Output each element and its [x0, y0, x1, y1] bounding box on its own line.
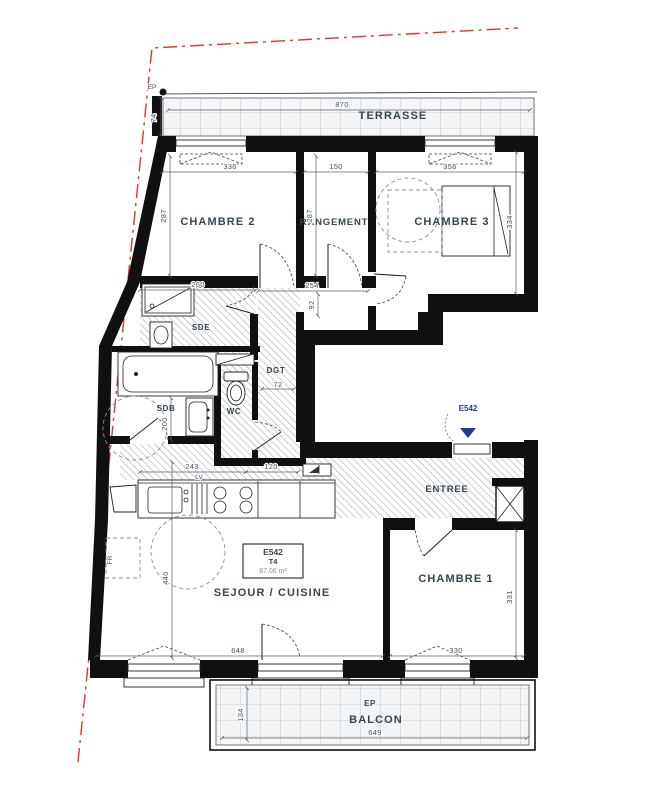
dim-chambre1-h: 331 — [505, 590, 514, 603]
door-window-sejour — [258, 664, 343, 671]
unit-area: 87.06 m² — [259, 568, 287, 575]
dim-kitchen-l: 440 — [161, 571, 170, 584]
dgt-label: DGT — [267, 366, 286, 375]
ep-terrasse-label: EP — [148, 84, 157, 91]
dim-terrasse-w: 870 — [335, 100, 348, 109]
dim-sdb-d: 200 — [160, 417, 169, 430]
floor-plan-page: EP TERRASSE 870 74 — [0, 0, 663, 800]
dim-hall-l: 254 — [305, 281, 318, 290]
dim-rangement-w: 150 — [329, 162, 342, 171]
chambre1-label: CHAMBRE 1 — [418, 573, 493, 585]
dim-chambre3-w: 356 — [443, 162, 456, 171]
balcon-label: BALCON — [349, 714, 403, 726]
ep-drain-icon — [160, 89, 167, 96]
dim-dgt-w: 72 — [274, 380, 283, 389]
balcon: EP BALCON 649 134 — [210, 680, 535, 750]
dim-chambre3-h: 334 — [505, 215, 514, 228]
dim-chambre1-w: 330 — [449, 646, 462, 655]
shaft-box — [496, 486, 524, 522]
wc-label: WC — [227, 407, 242, 416]
dim-hall-w: 92 — [307, 301, 316, 310]
window-chambre1 — [405, 664, 470, 671]
dim-kitchen-a: 243 — [185, 462, 198, 471]
vent-marker — [303, 464, 331, 476]
dishwasher-label: LV — [195, 474, 203, 481]
dim-sde-w: 260 — [191, 280, 204, 289]
entry-door — [454, 444, 490, 454]
entry-label: E542 — [459, 404, 478, 413]
terrasse-label: TERRASSE — [359, 110, 428, 122]
entree-label: ENTREE — [425, 484, 468, 495]
unit-info-box: E542 T4 87.06 m² — [243, 544, 303, 578]
bathtub — [118, 352, 218, 396]
chambre3-label: CHAMBRE 3 — [414, 216, 489, 228]
dim-balcon-w: 649 — [368, 728, 381, 737]
fridge-label: FR — [107, 555, 114, 564]
window-chambre3 — [425, 140, 495, 146]
dim-chambre2-h: 287 — [159, 209, 168, 222]
unit-code: E542 — [263, 547, 283, 557]
sde-label: SDE — [192, 323, 210, 332]
sdb-label: SDB — [157, 404, 176, 413]
kitchen-pier — [110, 485, 136, 512]
window-sejour-left-sill — [124, 678, 204, 687]
dim-rangement-h: 287 — [305, 209, 314, 222]
ep-balcon-label: EP — [364, 699, 376, 708]
dim-kitchen-b: 120 — [264, 462, 277, 471]
dim-balcon-d: 134 — [236, 708, 245, 721]
chambre2-label: CHAMBRE 2 — [180, 216, 255, 228]
unit-type: T4 — [269, 557, 279, 566]
window-chambre2 — [176, 140, 246, 146]
kitchen-counter: LV — [110, 474, 335, 518]
window-sejour-left — [128, 664, 200, 671]
sejour-label: SEJOUR / CUISINE — [214, 587, 331, 599]
dim-chambre2-w: 336 — [223, 162, 236, 171]
dim-terrasse-d: 74 — [149, 114, 158, 123]
dim-sejour-w: 648 — [231, 646, 244, 655]
hall-floor — [258, 288, 300, 315]
floor-plan-svg: EP TERRASSE 870 74 — [0, 0, 663, 800]
